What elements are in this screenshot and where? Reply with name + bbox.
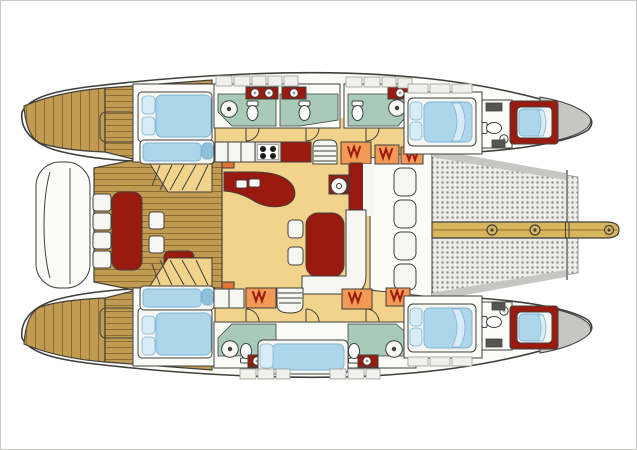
cockpit-bench-cushion [93, 213, 111, 230]
single-berth [143, 143, 201, 161]
galley-counter [215, 142, 255, 162]
galley-counter-red [281, 142, 311, 162]
dining-chair [288, 220, 303, 238]
forward-head [482, 302, 512, 350]
pillow [202, 289, 213, 305]
forward-head [482, 100, 512, 148]
pillow [142, 316, 155, 334]
cockpit-cushion [394, 232, 416, 260]
island-sink [249, 179, 260, 187]
dinghy-platform [36, 162, 90, 288]
cockpit-bench-cushion [93, 232, 111, 249]
stove [255, 142, 281, 162]
pillow [142, 96, 155, 114]
toilet-icon [482, 317, 502, 328]
catamaran-floor-plan-screenshot: Sailing catamaran accommodation deck pla… [0, 0, 637, 450]
toilet-icon [299, 101, 310, 121]
pillow [260, 344, 273, 368]
shower-icon [386, 341, 403, 358]
nav-console [349, 163, 363, 217]
island-sink [236, 180, 247, 188]
center-berth [272, 344, 344, 370]
double-bed [156, 95, 211, 137]
cockpit-bench-cushion [93, 251, 111, 268]
overhead-cabinets [408, 84, 472, 93]
pillow [410, 328, 422, 346]
locker [492, 140, 505, 147]
cockpit-cushion [394, 168, 416, 196]
cockpit-bench-cushion [93, 194, 111, 211]
pillow [142, 337, 155, 355]
saloon-entry-steps [313, 140, 337, 164]
pillow [142, 117, 155, 135]
bowsprit-beam [432, 222, 619, 238]
sink-icon [363, 357, 371, 365]
locker [492, 303, 505, 310]
pillow [410, 308, 422, 326]
crew-cabin-port [510, 101, 558, 144]
cockpit-cushion [394, 264, 416, 290]
crew-cabin-starboard [510, 306, 558, 349]
sink-icon [251, 89, 259, 97]
locker [486, 339, 502, 347]
sink-icon [396, 89, 404, 97]
locker [486, 103, 502, 111]
shower-icon [222, 341, 239, 358]
cockpit-table [112, 192, 142, 270]
overhead-cabinets [408, 357, 472, 366]
single-berth [143, 289, 201, 307]
helm-seat [331, 178, 347, 194]
shower-icon [221, 101, 238, 118]
cockpit-chair [149, 236, 164, 253]
toilet-icon [482, 123, 502, 134]
toilet-icon [247, 101, 258, 121]
cockpit-chair [149, 212, 164, 229]
cockpit-cushion [394, 200, 416, 228]
forward-cockpit [370, 151, 432, 297]
toilet-icon [352, 101, 363, 121]
shower-icon [389, 100, 406, 117]
saloon-entry-steps [277, 288, 303, 313]
pillow [410, 102, 422, 120]
dining-table [306, 213, 344, 277]
floor-plan-svg: Sailing catamaran accommodation deck pla… [0, 0, 637, 450]
pillow [202, 143, 213, 159]
sink-icon [265, 89, 273, 97]
sofa-back [363, 164, 373, 216]
dining-chair [288, 247, 303, 265]
pillow [410, 122, 422, 140]
sink-icon [290, 89, 298, 97]
double-bed [156, 313, 211, 355]
